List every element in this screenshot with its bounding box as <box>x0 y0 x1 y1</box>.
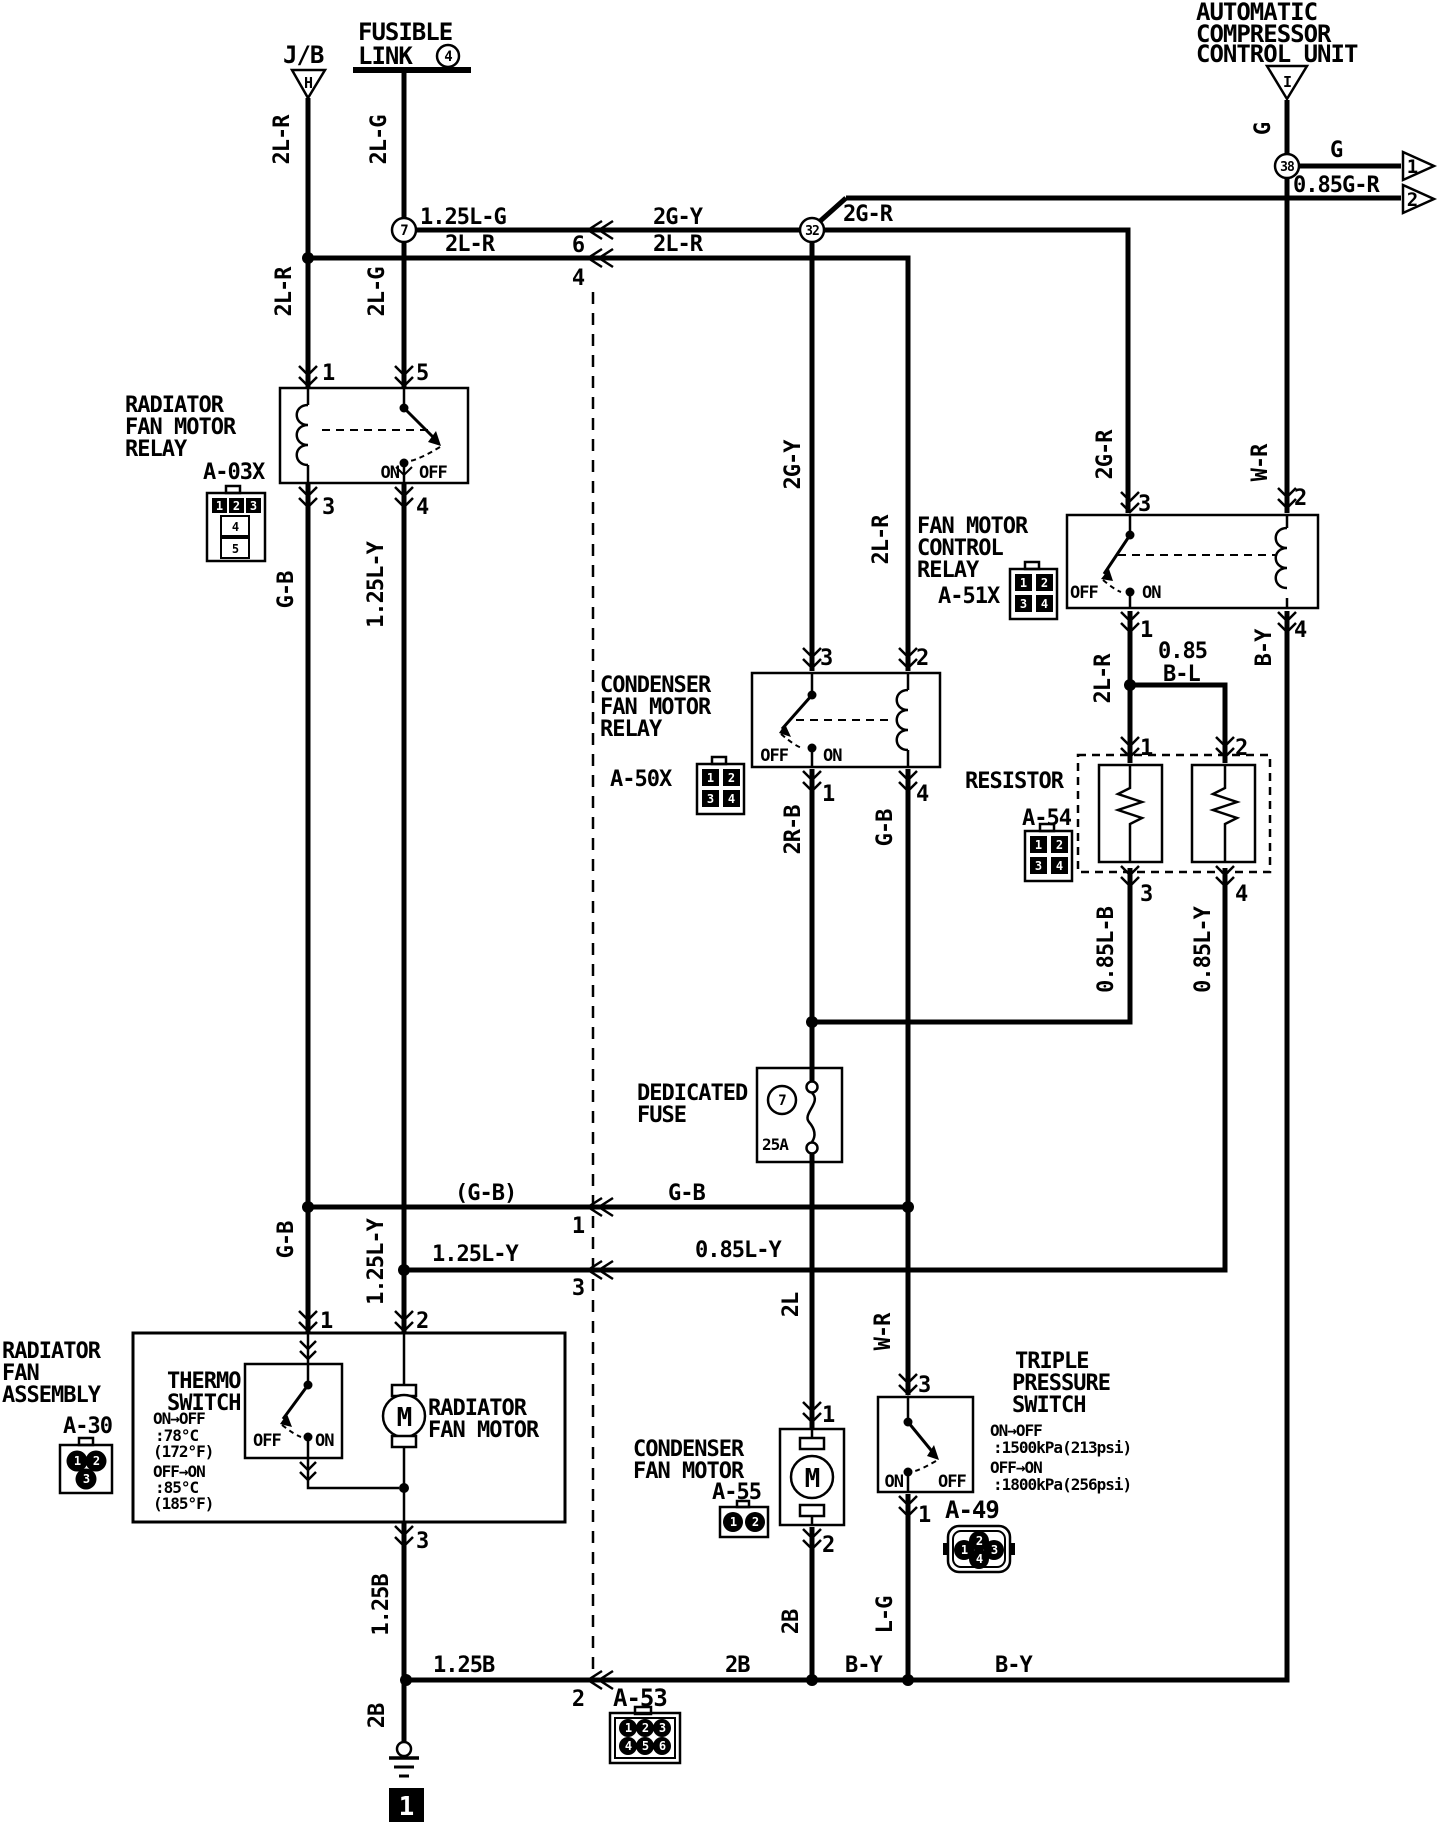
wire-label: 2G-R <box>843 202 894 227</box>
pressure-switch-code: A-49 <box>945 1496 999 1524</box>
jb-triangle-code: H <box>304 74 313 92</box>
a53-pin-2: 2 <box>572 1687 584 1712</box>
icon-pin: 1 <box>1035 838 1042 852</box>
pressure-switch-off: OFF <box>938 1472 966 1492</box>
resistor-title: RESISTOR <box>965 769 1065 794</box>
icon-pin: 2 <box>1041 576 1048 590</box>
dedicated-fuse: 7 25A DEDICATED FUSE <box>637 1068 842 1162</box>
assembly-pin-1: 1 <box>320 1309 333 1334</box>
a30-connector-icon: 1 2 3 <box>60 1438 112 1493</box>
a49-connector-icon: 2 1 3 4 <box>943 1526 1015 1572</box>
control-relay-code: A-51X <box>938 584 1000 609</box>
radiator-relay-pin-5: 5 <box>416 361 428 386</box>
condenser-relay-pin-1: 1 <box>822 782 835 807</box>
icon-pin: 3 <box>83 1472 90 1486</box>
wire-label: 0.85L-Y <box>695 1238 782 1263</box>
radiator-relay-title-3: RELAY <box>125 437 188 462</box>
wire-label: 2R-B <box>781 805 806 855</box>
a50x-connector-icon: 1 2 3 4 <box>697 757 744 814</box>
icon-pin: 2 <box>752 1515 759 1529</box>
fuse-rating: 25A <box>762 1135 789 1154</box>
offpage-arrow-2-num: 2 <box>1407 189 1417 211</box>
jb-label: J/B <box>283 41 324 69</box>
control-relay-pin-3: 3 <box>1138 492 1150 517</box>
pressure-switch-on: ON <box>885 1472 904 1492</box>
resistor-code: A-54 <box>1022 806 1072 831</box>
wire-label-085gr: 0.85G-R <box>1293 173 1380 198</box>
icon-pin: 4 <box>976 1552 983 1566</box>
wire-label: 1.25L-Y <box>432 1242 519 1267</box>
wires <box>308 73 1401 1742</box>
condenser-relay-pin-3: 3 <box>820 646 832 671</box>
pressure-note-2: :1500kPa(213psi) <box>993 1438 1131 1457</box>
page-reference: 1 <box>389 1788 424 1822</box>
wire-label: 1.25L-G <box>420 205 506 230</box>
icon-pin: 2 <box>233 499 240 513</box>
motor-symbol: M <box>805 1464 820 1494</box>
resistor-pin-1: 1 <box>1140 736 1153 761</box>
wire-label-g-out: G <box>1330 138 1343 163</box>
a53-icon-pin: 1 <box>625 1721 632 1735</box>
wire-label: 1.25B <box>369 1574 394 1636</box>
radiator-fan-motor-label-2: FAN MOTOR <box>428 1418 540 1443</box>
icon-pin: 2 <box>728 771 735 785</box>
offpage-arrows: 1 G 2 0.85G-R <box>1293 138 1434 213</box>
wire-label: 0.85L-B <box>1094 906 1119 992</box>
splice-32: 32 <box>805 224 819 239</box>
wire-label: 2L-R <box>1091 653 1116 704</box>
radiator-fan-assembly: 1 2 OFF ON THERMO SWITCH ON→OFF :78°C (1… <box>2 1309 565 1554</box>
relay-coil-icon <box>1276 528 1287 588</box>
icon-pin: 5 <box>232 542 239 556</box>
condenser-relay-pin-4: 4 <box>916 782 929 807</box>
pressure-blade-link-dashed <box>915 1461 936 1471</box>
wire-label: 2L-G <box>365 267 390 317</box>
fuse-terminal-icon <box>807 1143 818 1154</box>
wire-label: G-B <box>873 809 898 846</box>
icon-pin: 4 <box>1056 859 1063 873</box>
resistor-pin-4: 4 <box>1235 882 1248 907</box>
radiator-relay-pin-4: 4 <box>416 495 429 520</box>
a54-connector-icon: 1 2 3 4 <box>1025 824 1072 881</box>
a51x-connector-icon: 1 2 3 4 <box>1010 562 1057 619</box>
condenser-fan-motor-relay: 3 2 OFF ON 1 4 CONDENSER FAN MOTOR RELAY… <box>600 646 940 814</box>
icon-pin: 2 <box>1056 838 1063 852</box>
condenser-relay-on: ON <box>823 746 842 766</box>
control-relay-pin-2: 2 <box>1294 486 1306 511</box>
a03x-connector-icon: 1 2 3 4 5 <box>207 486 265 561</box>
wire-label: 2L-R <box>445 232 496 257</box>
thermo-note-6: (185°F) <box>153 1494 213 1513</box>
triple-pressure-switch: 3 ON OFF 1 TRIPLE PRESSURE SWITCH ON→OFF… <box>878 1349 1131 1572</box>
condenser-relay-pin-2: 2 <box>916 646 928 671</box>
a53-pin-3: 3 <box>572 1276 584 1301</box>
wire-label: G-B <box>668 1181 705 1206</box>
icon-pin: 3 <box>707 792 714 806</box>
motor-terminal-icon <box>800 1505 824 1516</box>
fuse-element-icon <box>807 1093 814 1142</box>
wire-2gr <box>824 230 1128 513</box>
wire-splice32-diagonal <box>818 198 846 223</box>
assembly-pin-3: 3 <box>416 1529 428 1554</box>
control-relay-off: OFF <box>1070 583 1098 603</box>
a53-icon-pin: 3 <box>659 1721 666 1735</box>
pressure-note-4: :1800kPa(256psi) <box>993 1475 1131 1494</box>
wire-label: 1.25B <box>433 1653 495 1678</box>
wire-label: W-R <box>871 1312 896 1350</box>
resistor-zigzag-icon <box>1213 765 1237 862</box>
condenser-motor-pin-1: 1 <box>822 1403 835 1428</box>
wire-label: 2L <box>779 1292 804 1317</box>
wire-label: W-R <box>1248 443 1273 481</box>
wire-label: 1.25L-Y <box>364 540 389 627</box>
assembly-title-3: ASSEMBLY <box>2 1383 102 1408</box>
icon-pin: 1 <box>216 499 223 513</box>
inline-connector-a53: 6 4 1 3 2 A-53 1 2 3 4 5 6 <box>572 221 680 1763</box>
wire-label: 2L-R <box>270 114 295 165</box>
fan-motor-control-relay: 3 2 OFF ON 1 4 FAN MOTOR CONTROL RELAY A… <box>917 486 1318 643</box>
icon-pin: 1 <box>74 1454 81 1468</box>
wire-label: G-B <box>274 1221 299 1258</box>
control-relay-title-3: RELAY <box>917 558 980 583</box>
wire-label: 1.25L-Y <box>364 1217 389 1304</box>
wire-label: L-G <box>873 1596 898 1633</box>
ground-bars-icon <box>394 1767 414 1776</box>
splice-7: 7 <box>400 223 408 239</box>
radiator-relay-off: OFF <box>419 463 447 483</box>
junction-block-ref: J/B H <box>283 41 325 98</box>
a53-icon-pin: 5 <box>642 1739 649 1753</box>
condenser-relay-off: OFF <box>760 746 788 766</box>
thermo-on: ON <box>315 1431 334 1451</box>
pressure-switch-pin-3: 3 <box>918 1373 930 1398</box>
fusible-link-number: 4 <box>444 49 452 65</box>
icon-pin: 1 <box>730 1515 737 1529</box>
a53-pin-1: 1 <box>572 1214 585 1239</box>
wire-label: (G-B) <box>455 1181 516 1206</box>
wire-label: G <box>1251 122 1276 135</box>
wire-label: 2B <box>365 1703 390 1728</box>
thermo-note-3: (172°F) <box>153 1442 213 1461</box>
acc-title-3: CONTROL UNIT <box>1196 40 1358 68</box>
page-ref-number: 1 <box>399 1792 414 1822</box>
wire-label: B-L <box>1163 662 1200 687</box>
ground-terminal-icon <box>397 1742 411 1756</box>
icon-pin: 4 <box>1041 597 1048 611</box>
wire-085lb <box>812 868 1130 1022</box>
icon-pin: 3 <box>991 1543 998 1557</box>
wire-label: B-Y <box>845 1653 883 1678</box>
compressor-control-unit-ref: AUTOMATIC COMPRESSOR CONTROL UNIT I <box>1196 0 1358 99</box>
icon-pin: 2 <box>976 1534 983 1548</box>
wire-label: B-Y <box>995 1653 1033 1678</box>
radiator-relay-pin-3: 3 <box>322 495 334 520</box>
pressure-switch-pin-1: 1 <box>918 1503 931 1528</box>
relay-blade-link-dashed <box>1103 580 1121 592</box>
a53-pin-6: 6 <box>572 233 585 258</box>
a53-icon-pin: 4 <box>625 1739 632 1753</box>
assembly-code: A-30 <box>63 1414 112 1439</box>
wire-label: 2L-G <box>367 115 392 165</box>
a53-icon-pin: 6 <box>659 1739 666 1753</box>
motor-terminal-icon <box>392 1436 416 1447</box>
offpage-arrow-1-num: 1 <box>1407 156 1418 178</box>
fusible-link-bar <box>353 67 471 73</box>
radiator-fan-motor-relay: 1 5 ON OFF 3 4 RADIATOR FAN MOTOR RELAY … <box>125 361 468 561</box>
pressure-switch-title-3: SWITCH <box>1012 1393 1085 1418</box>
icon-pin: 3 <box>1035 859 1042 873</box>
relay-blade-link-dashed <box>410 447 440 461</box>
icon-pin: 2 <box>93 1454 100 1468</box>
thermo-switch-blade <box>283 1385 308 1419</box>
resistor-zigzag-icon <box>1118 765 1142 862</box>
control-relay-on: ON <box>1142 583 1161 603</box>
icon-pin: 1 <box>961 1543 968 1557</box>
fusible-link-title-2: LINK <box>358 42 413 70</box>
icon-pin: 4 <box>728 792 735 806</box>
relay-coil-icon <box>897 690 908 750</box>
a55-connector-icon: 1 2 <box>720 1501 768 1537</box>
resistor-pin-3: 3 <box>1140 882 1152 907</box>
wire-label: 2G-R <box>1093 429 1118 480</box>
wire-label: 2L-R <box>869 514 894 565</box>
wire-label: 2G-Y <box>653 205 704 230</box>
icon-pin: 3 <box>1020 597 1027 611</box>
icon-pin: 1 <box>1020 576 1027 590</box>
fuse-number: 7 <box>778 1093 786 1109</box>
ground-symbol <box>389 1742 419 1776</box>
thermo-blade-arrowhead-icon <box>280 1414 292 1427</box>
relay-coil-icon <box>297 405 308 465</box>
wire-label: 0.85 <box>1158 639 1207 664</box>
motor-symbol: M <box>397 1403 412 1433</box>
relay-switch-blade <box>782 695 812 729</box>
fuse-terminal-icon <box>807 1082 818 1093</box>
a53-pin-4: 4 <box>572 266 585 291</box>
relay-switch-blade <box>1104 535 1130 574</box>
icon-pin: 4 <box>232 520 239 534</box>
condenser-relay-code: A-50X <box>610 767 672 792</box>
radiator-relay-pin-1: 1 <box>322 361 335 386</box>
assembly-pin-2: 2 <box>416 1309 428 1334</box>
wire-label: G-B <box>274 571 299 608</box>
acc-triangle-code: I <box>1283 73 1291 91</box>
wire-label: 2B <box>725 1653 750 1678</box>
a53-connector-icon: 1 2 3 4 5 6 <box>610 1707 680 1763</box>
fusible-link-ref: FUSIBLE LINK 4 <box>353 18 471 73</box>
condenser-motor-pin-2: 2 <box>822 1533 834 1558</box>
thermo-off: OFF <box>253 1431 281 1451</box>
wire-by-bottom-bus <box>406 611 1287 1680</box>
resistor-pin-2: 2 <box>1235 736 1247 761</box>
a53-icon-pin: 2 <box>642 1721 649 1735</box>
fuse-title-2: FUSE <box>637 1103 686 1128</box>
radiator-relay-on: ON <box>381 463 400 483</box>
wiring-diagram-page: J/B H FUSIBLE LINK 4 AUTOMATIC COMPRESSO… <box>0 0 1440 1824</box>
control-relay-pin-4: 4 <box>1294 618 1307 643</box>
wire-label: 2B <box>779 1609 804 1634</box>
resistor-assembly-dashed-box <box>1078 755 1270 872</box>
condenser-relay-title-3: RELAY <box>600 717 663 742</box>
control-relay-pin-1: 1 <box>1140 618 1153 643</box>
wire-label: B-Y <box>1252 628 1277 666</box>
icon-pin: 3 <box>250 499 257 513</box>
wire-label: 2L-R <box>653 232 704 257</box>
wire-label: 0.85L-Y <box>1191 905 1216 992</box>
radiator-relay-code: A-03X <box>203 460 265 485</box>
motor-terminal-icon <box>800 1438 824 1449</box>
wire-label: 2G-Y <box>781 439 806 490</box>
wiring-diagram: J/B H FUSIBLE LINK 4 AUTOMATIC COMPRESSO… <box>0 0 1440 1824</box>
icon-pin: 1 <box>707 771 714 785</box>
wire-label: 2L-R <box>272 266 297 317</box>
